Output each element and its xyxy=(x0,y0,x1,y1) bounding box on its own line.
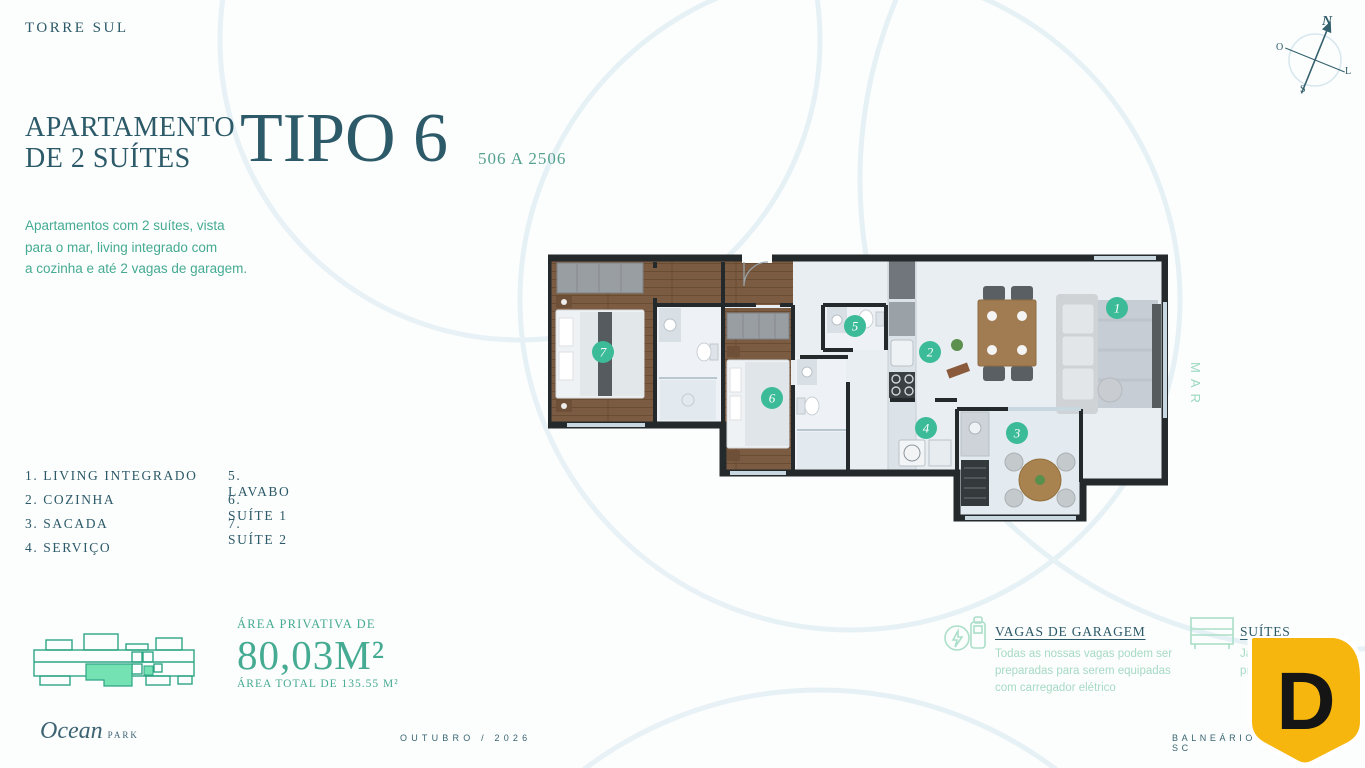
room-marker: 2 xyxy=(919,341,941,363)
legend-item: 4. SERVIÇO xyxy=(25,540,198,564)
compass-west-label: O xyxy=(1276,42,1283,53)
legend-item: 1. LIVING INTEGRADO xyxy=(25,468,198,492)
room-marker: 3 xyxy=(1006,422,1028,444)
legend-column-2: 5. LAVABO 6. SUÍTE 1 7. SUÍTE 2 xyxy=(228,468,290,540)
brand-suffix: PARK xyxy=(108,730,139,740)
area-info: ÁREA PRIVATIVA DE 80,03M² ÁREA TOTAL DE … xyxy=(237,617,399,690)
garage-text-line: Todas as nossas vagas podem ser xyxy=(995,646,1172,663)
garage-text-line: com carregador elétrico xyxy=(995,680,1172,697)
legend-column-1: 1. LIVING INTEGRADO 2. COZINHA 3. SACADA… xyxy=(25,468,198,564)
floor-plan: 1 2 3 4 5 6 7 xyxy=(548,251,1168,529)
apartment-title-line1: APARTAMENTO xyxy=(25,112,235,143)
svg-text:4: 4 xyxy=(923,421,930,436)
apartment-title: APARTAMENTO DE 2 SUÍTES xyxy=(25,112,235,174)
room-legend: 1. LIVING INTEGRADO 2. COZINHA 3. SACADA… xyxy=(25,468,198,564)
brochure-page: TORRE SUL APARTAMENTO DE 2 SUÍTES TIPO 6… xyxy=(0,0,1365,768)
svg-text:5: 5 xyxy=(852,319,859,334)
intro-line: Apartamentos com 2 suítes, vista xyxy=(25,215,247,237)
brand-script: Ocean xyxy=(40,718,103,744)
intro-text: Apartamentos com 2 suítes, vista para o … xyxy=(25,215,247,280)
room-marker: 4 xyxy=(915,417,937,439)
d-logo-letter: D xyxy=(1276,656,1335,747)
compass-north-label: N xyxy=(1322,14,1332,30)
legend-item: 3. SACADA xyxy=(25,516,198,540)
svg-text:6: 6 xyxy=(769,391,776,406)
svg-text:3: 3 xyxy=(1013,426,1021,441)
svg-text:2: 2 xyxy=(927,345,934,360)
area-total-label: ÁREA TOTAL DE 135.55 M² xyxy=(237,678,399,690)
service-area xyxy=(899,440,951,466)
brand-logo: OceanPARK xyxy=(40,718,139,745)
intro-line: a cozinha e até 2 vagas de garagem. xyxy=(25,258,247,280)
compass-south-label: S xyxy=(1300,84,1306,95)
area-private-value: 80,03M² xyxy=(237,632,399,678)
svg-text:1: 1 xyxy=(1114,301,1121,316)
bed-icon xyxy=(1188,614,1236,652)
room-marker: 7 xyxy=(592,341,614,363)
room-marker: 1 xyxy=(1106,297,1128,319)
type-title: TIPO 6 xyxy=(240,100,448,178)
tower-label: TORRE SUL xyxy=(25,20,128,37)
suite2-furniture xyxy=(556,263,644,412)
area-private-label: ÁREA PRIVATIVA DE xyxy=(237,617,399,632)
units-range: 506 A 2506 xyxy=(478,149,566,169)
date-label: OUTUBRO / 2026 xyxy=(400,733,531,743)
garage-text-line: preparadas para serem equipadas xyxy=(995,663,1172,680)
room-marker: 6 xyxy=(761,387,783,409)
d-logo: D xyxy=(1244,636,1365,768)
sea-label: MAR xyxy=(1188,362,1203,409)
svg-text:7: 7 xyxy=(600,345,607,360)
apartment-title-line2: DE 2 SUÍTES xyxy=(25,143,235,174)
plant xyxy=(951,339,963,351)
keyplate-diagram xyxy=(28,620,200,694)
ev-charger-icon xyxy=(941,612,989,656)
room-marker: 5 xyxy=(844,315,866,337)
keyplate-highlighted-unit xyxy=(86,664,132,686)
compass-east-label: L xyxy=(1345,66,1351,77)
kitchen-counter xyxy=(888,259,916,471)
legend-item: 5. LAVABO xyxy=(228,468,290,492)
intro-line: para o mar, living integrado com xyxy=(25,237,247,259)
garage-feature-text: Todas as nossas vagas podem ser preparad… xyxy=(995,646,1172,697)
compass xyxy=(1280,12,1360,108)
suite1-furniture xyxy=(727,313,789,461)
legend-item: 2. COZINHA xyxy=(25,492,198,516)
garage-feature-title: VAGAS DE GARAGEM xyxy=(995,624,1146,640)
